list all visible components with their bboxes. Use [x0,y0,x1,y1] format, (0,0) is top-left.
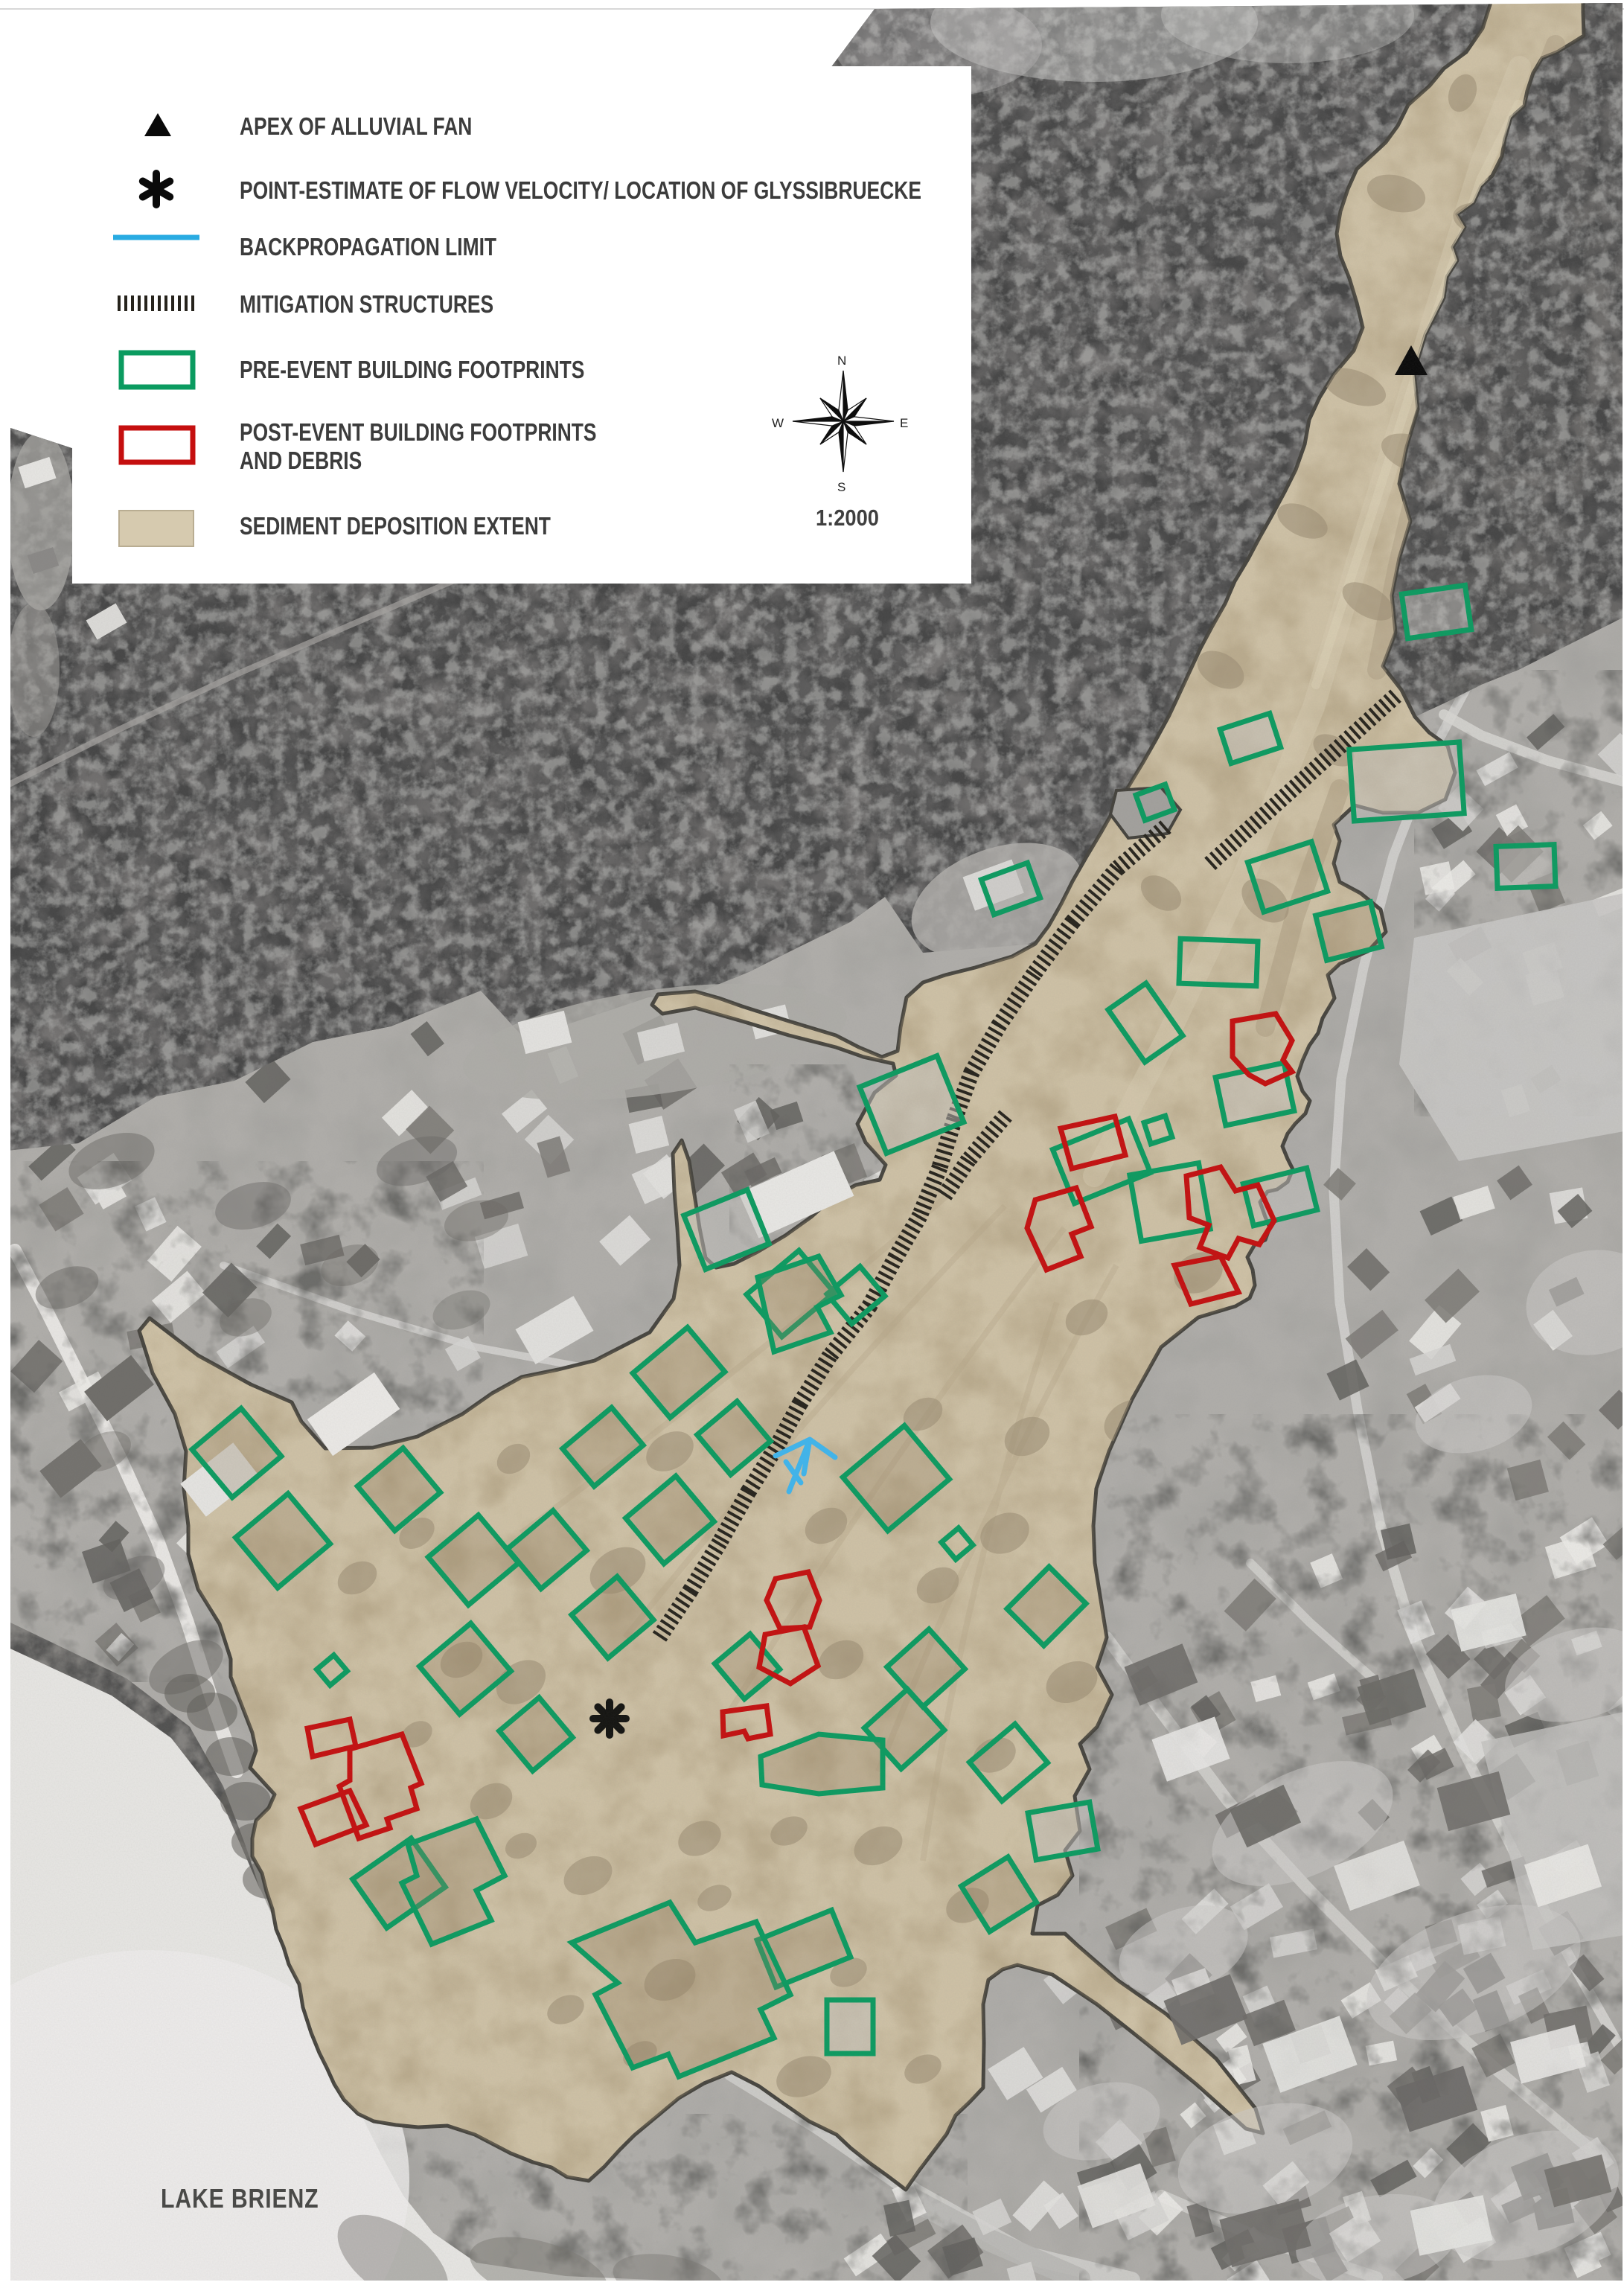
svg-text:E: E [900,416,908,430]
svg-text:POST-EVENT BUILDING FOOTPRINTS: POST-EVENT BUILDING FOOTPRINTS [240,419,597,446]
svg-text:PRE-EVENT BUILDING FOOTPRINTS: PRE-EVENT BUILDING FOOTPRINTS [240,357,584,383]
svg-text:W: W [772,416,784,430]
svg-text:SEDIMENT DEPOSITION EXTENT: SEDIMENT DEPOSITION EXTENT [240,513,551,540]
svg-text:LAKE BRIENZ: LAKE BRIENZ [161,2185,319,2214]
svg-text:POINT-ESTIMATE OF FLOW VELOCIT: POINT-ESTIMATE OF FLOW VELOCITY/ LOCATIO… [240,177,921,204]
svg-text:APEX OF ALLUVIAL FAN: APEX OF ALLUVIAL FAN [240,113,472,140]
svg-text:MITIGATION STRUCTURES: MITIGATION STRUCTURES [240,291,493,318]
svg-text:N: N [837,354,846,368]
svg-text:S: S [837,480,845,494]
svg-text:1:2000: 1:2000 [816,505,879,531]
svg-text:BACKPROPAGATION LIMIT: BACKPROPAGATION LIMIT [240,234,496,261]
svg-text:AND DEBRIS: AND DEBRIS [240,447,362,474]
